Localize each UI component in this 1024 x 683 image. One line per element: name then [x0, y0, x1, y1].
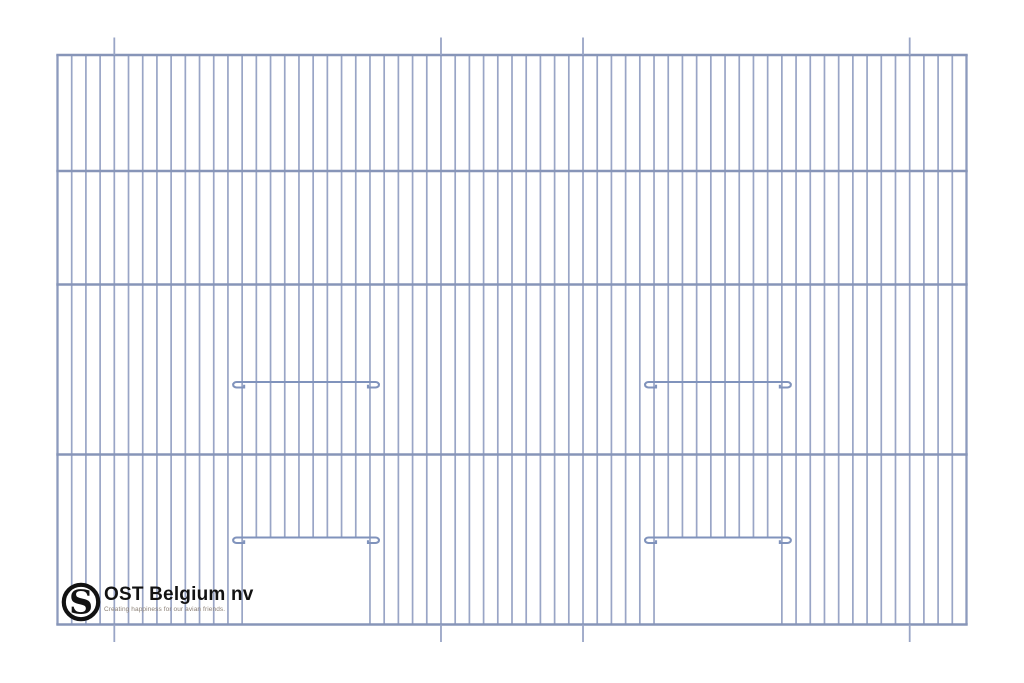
door-hook-wire: [645, 382, 791, 388]
door-hook-wire: [233, 538, 379, 544]
logo-text: OST Belgium nv Creating happiness for ou…: [104, 581, 254, 613]
door-hook-wire: [233, 382, 379, 388]
company-tagline: Creating happiness for our avian friends…: [104, 606, 254, 613]
company-name: OST Belgium nv: [104, 585, 254, 605]
ost-monogram-icon: S: [60, 581, 102, 623]
ost-belgium-logo: S OST Belgium nv Creating happiness for …: [60, 581, 254, 623]
monogram-letter: S: [69, 583, 93, 622]
door-hook-wire: [645, 538, 791, 544]
product-drawing-page: S OST Belgium nv Creating happiness for …: [0, 0, 1024, 683]
